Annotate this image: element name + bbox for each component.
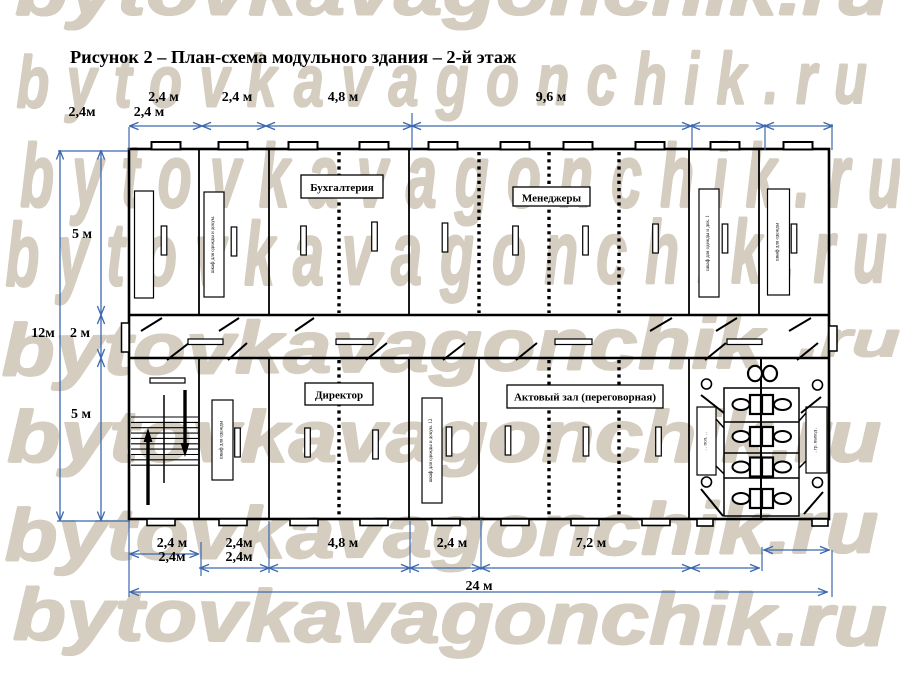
svg-text:Рисунок 2 – План-схема модульн: Рисунок 2 – План-схема модульного здания…	[70, 47, 517, 67]
svg-text:2,4м: 2,4м	[158, 550, 186, 565]
svg-text:2,4 м: 2,4 м	[134, 105, 165, 120]
svg-text:2,4м: 2,4м	[225, 550, 253, 565]
svg-text:12м: 12м	[31, 326, 55, 341]
svg-text:Менеджеры: Менеджеры	[522, 193, 582, 205]
svg-text:2,4м: 2,4м	[225, 536, 253, 551]
svg-text:шкаф для одежды: шкаф для одежды	[220, 420, 225, 459]
svg-text:шкаф для одежды и докум.: шкаф для одежды и докум.	[211, 216, 216, 273]
svg-text:2,4м: 2,4м	[68, 105, 96, 120]
svg-text:Бухгалтерия: Бухгалтерия	[310, 182, 374, 194]
svg-text:5 м: 5 м	[71, 407, 92, 422]
svg-text:шкаф для одежды и док. 1: шкаф для одежды и док. 1	[706, 215, 711, 271]
svg-text:9,6 м: 9,6 м	[536, 90, 567, 105]
svg-text:2,4 м: 2,4 м	[222, 90, 253, 105]
svg-text:шкаф для одежды: шкаф для одежды	[776, 222, 781, 261]
svg-text:Директор: Директор	[315, 390, 363, 402]
svg-text:Актовый зал (переговорная): Актовый зал (переговорная)	[514, 392, 656, 404]
svg-text:2,4 м: 2,4 м	[157, 536, 188, 551]
svg-text:4,8 м: 4,8 м	[328, 536, 359, 551]
svg-text:5 м: 5 м	[72, 227, 93, 242]
svg-text:2,4 м: 2,4 м	[437, 536, 468, 551]
svg-text:2,4 м: 2,4 м	[148, 90, 179, 105]
svg-text:24 м: 24 м	[465, 579, 493, 594]
svg-text:7,2 м: 7,2 м	[576, 536, 607, 551]
svg-text:2 м: 2 м	[70, 326, 91, 341]
svg-text:. . пол. . .: . . пол. . .	[704, 432, 709, 451]
svg-text:шкаф для одежды и докум. 12: шкаф для одежды и докум. 12	[429, 418, 434, 482]
svg-text:. гр. выход .: . гр. выход .	[814, 428, 819, 453]
svg-text:4,8 м: 4,8 м	[328, 90, 359, 105]
